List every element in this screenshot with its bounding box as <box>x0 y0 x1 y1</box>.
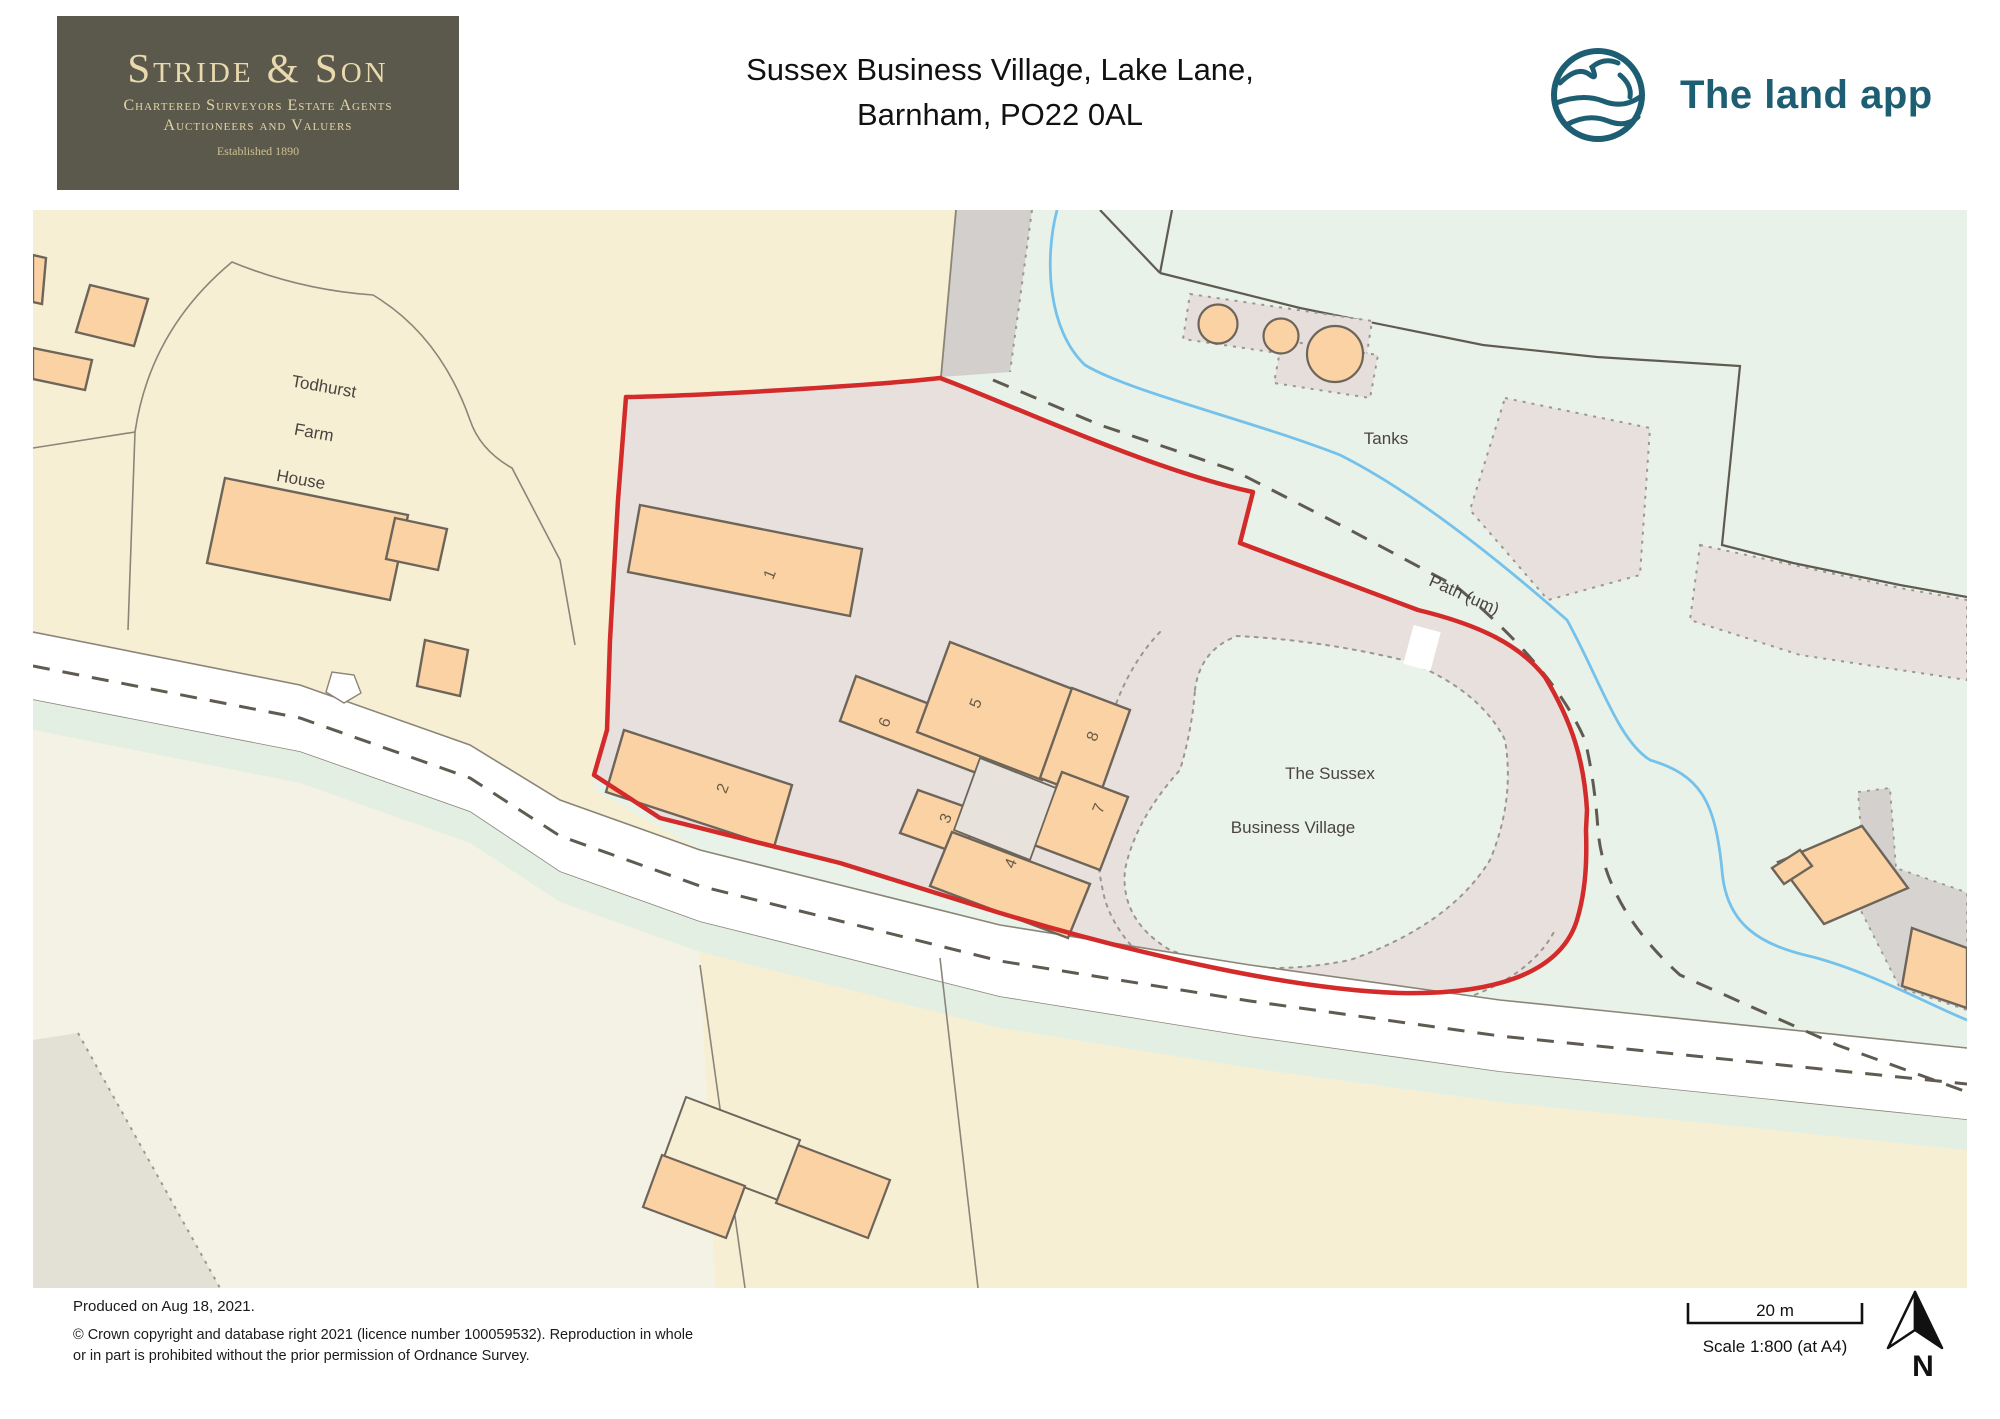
tank-2 <box>1264 319 1299 354</box>
tank-1 <box>1199 305 1238 344</box>
footer: Produced on Aug 18, 2021. © Crown copyri… <box>73 1298 973 1367</box>
north-label: N <box>1912 1350 1934 1383</box>
produced-date: Produced on Aug 18, 2021. <box>73 1298 973 1315</box>
scale-ratio: Scale 1:800 (at A4) <box>1703 1337 1848 1356</box>
tank-3 <box>1307 326 1363 382</box>
label-tanks: Tanks <box>1364 429 1408 448</box>
site-plan-map: Todhurst Farm House Tanks Path (um) The … <box>0 0 2000 1414</box>
building-shed <box>417 640 468 696</box>
map-layers: Todhurst Farm House Tanks Path (um) The … <box>33 210 1967 1288</box>
copyright-line1: © Crown copyright and database right 202… <box>73 1325 973 1346</box>
copyright-line2: or in part is prohibited without the pri… <box>73 1346 973 1367</box>
scale-distance: 20 m <box>1756 1301 1794 1320</box>
scale-bar-graphic: 20 m Scale 1:800 (at A4) N <box>1660 1284 1970 1414</box>
label-sussex-2: Business Village <box>1231 818 1355 837</box>
north-arrow-icon: N <box>1888 1292 1942 1383</box>
scale-and-north: 20 m Scale 1:800 (at A4) N <box>1660 1284 1970 1404</box>
label-sussex-1: The Sussex <box>1285 764 1375 783</box>
